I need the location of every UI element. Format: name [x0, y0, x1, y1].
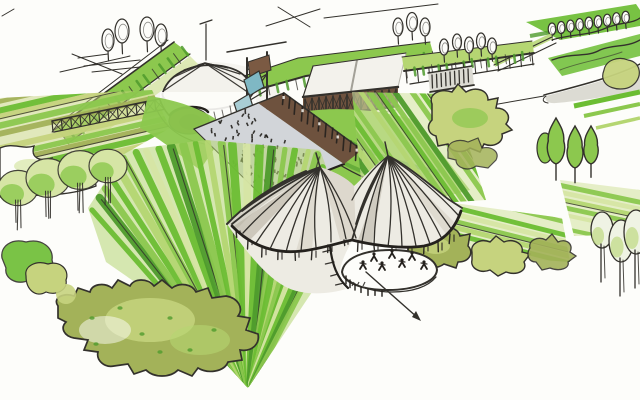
tree-trunk — [580, 31, 581, 36]
planting-tick — [488, 59, 489, 67]
wall-hatch-tick — [441, 74, 442, 87]
planting-tick — [496, 57, 497, 65]
tree-trunk-hatch — [83, 183, 84, 212]
wall-hatch-tick — [325, 124, 326, 137]
tree-trunk — [122, 43, 123, 54]
planting-tick — [304, 78, 306, 86]
person-head — [248, 114, 250, 116]
tree-trunk-hatch — [17, 200, 18, 230]
wall-hatch-tick — [450, 72, 451, 85]
wall-hatch-tick — [459, 71, 460, 84]
tree-trunk — [469, 53, 470, 60]
tree-trunk — [108, 51, 109, 61]
wall-speckle — [282, 96, 284, 99]
planting-tick — [423, 67, 424, 75]
wall-hatch-tick — [301, 106, 302, 121]
shrub-dot — [167, 316, 172, 320]
shrub-blob — [603, 58, 640, 89]
wall-speckle — [356, 149, 358, 152]
wall-speckle — [301, 109, 303, 112]
pale-tree-patch — [625, 227, 638, 249]
wall-hatch-tick — [437, 74, 438, 87]
pale-tree-patch — [592, 227, 604, 245]
concept-sketch-canvas — [0, 0, 640, 400]
fringe-tick — [248, 240, 249, 249]
tree-trunk — [147, 41, 148, 52]
shrub-dot — [117, 306, 122, 310]
tree-trunk — [626, 23, 627, 28]
person-mark — [244, 110, 246, 114]
person-head — [244, 109, 246, 111]
person-head — [237, 120, 239, 122]
tree-trunk — [598, 28, 599, 33]
wall-speckle — [337, 135, 339, 138]
tree-trunk — [492, 54, 493, 61]
fringe-tick — [449, 234, 450, 244]
wall-hatch-tick — [332, 128, 333, 138]
planting-tick — [514, 55, 515, 63]
fringe-tick — [358, 242, 359, 251]
planting-tick — [277, 84, 279, 92]
person-head — [211, 128, 213, 130]
shrub-patch — [452, 108, 488, 128]
wall-speckle — [318, 122, 320, 125]
shrub-dot — [89, 316, 94, 320]
planting-tick — [522, 52, 523, 60]
planting-tick — [414, 68, 415, 76]
planting-tick — [287, 81, 289, 89]
tree-trunk — [589, 29, 590, 34]
tree-trunk — [412, 32, 413, 41]
tree-trunk-hatch — [78, 183, 79, 210]
front-shrub — [56, 284, 76, 304]
tree-trunk-hatch — [46, 191, 47, 216]
tree-trunk — [398, 36, 399, 44]
tree-trunk-hatch — [16, 200, 17, 222]
wall-hatch-tick — [446, 73, 447, 86]
wall-hatch-tick — [343, 137, 344, 151]
wall-hatch-tick — [294, 102, 295, 114]
wall-hatch-tick — [289, 97, 290, 108]
wall-hatch-tick — [313, 115, 314, 127]
wall-hatch-tick — [350, 141, 351, 151]
wall-hatch-tick — [468, 69, 469, 82]
tree-trunk — [570, 32, 571, 37]
fringe-tick — [311, 250, 312, 260]
tree-trunk — [607, 26, 608, 31]
wall-hatch-tick — [432, 75, 433, 88]
tree-trunk-hatch — [21, 200, 22, 228]
wall-hatch-tick — [464, 70, 465, 83]
pale-tree-patch — [610, 237, 623, 258]
shrub-dot — [211, 328, 216, 332]
tree-trunk — [616, 25, 617, 30]
wall-hatch-tick — [455, 71, 456, 84]
sketch-stage — [0, 0, 640, 400]
shrub-dot — [93, 342, 98, 346]
wall-hatch-tick — [307, 111, 308, 124]
tree-trunk — [481, 49, 482, 56]
fringe-tick — [236, 230, 237, 237]
shrub-patch — [170, 325, 230, 355]
tree-trunk — [561, 34, 562, 39]
person-mark — [251, 134, 253, 138]
tree-trunk — [425, 36, 426, 44]
fringe-tick — [344, 240, 345, 246]
wall-hatch-tick — [356, 146, 357, 161]
tree-trunk — [444, 55, 445, 62]
tree-trunk — [457, 50, 458, 57]
shrub-dot — [139, 332, 144, 336]
shrub-dot — [187, 348, 192, 352]
shrub-dot — [157, 350, 162, 354]
